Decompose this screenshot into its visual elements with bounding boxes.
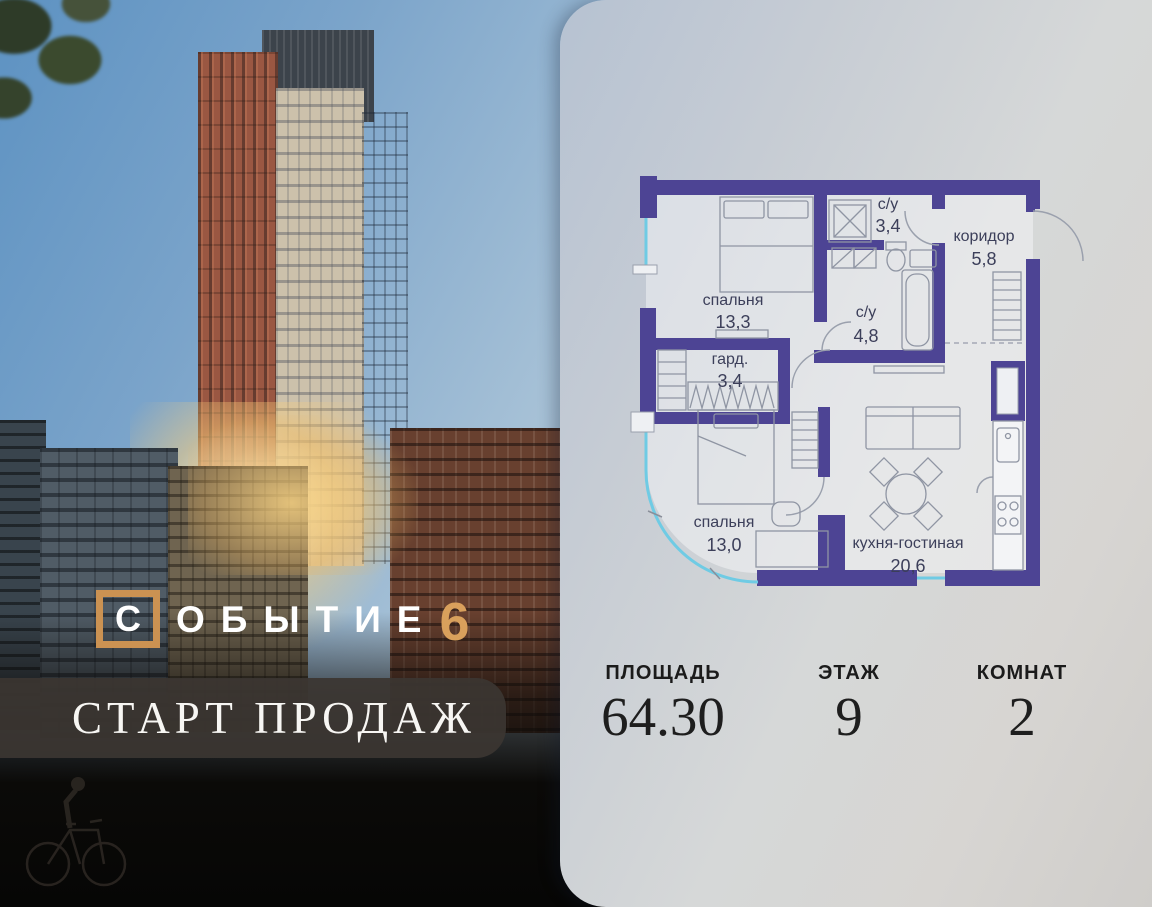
stat-floor: ЭТАЖ 9 [818, 662, 880, 744]
stat-floor-label: ЭТАЖ [818, 662, 880, 685]
tree-branch [0, 0, 186, 176]
logo-wordmark: ОБЫТИЕ [176, 601, 437, 638]
room-label: спальня [703, 292, 764, 309]
tower-base-glow [188, 415, 418, 575]
room-area: 20,6 [890, 556, 925, 576]
room-label: гард. [712, 351, 749, 368]
logo-letter-box: С [96, 590, 160, 648]
room-label: с/у [856, 304, 876, 321]
room-area: 3,4 [875, 216, 900, 236]
stat-rooms-label: КОМНАТ [977, 662, 1068, 685]
sales-banner: СТАРТ ПРОДАЖ [0, 678, 506, 758]
sales-banner-text: СТАРТ ПРОДАЖ [72, 692, 476, 744]
floor-plan: спальня 13,3 гард. 3,4 с/у 3,4 коридор 5… [620, 160, 1090, 610]
room-label: кухня-гостиная [852, 535, 963, 552]
room-area: 4,8 [853, 326, 878, 346]
room-label: коридор [953, 228, 1014, 245]
stat-floor-value: 9 [818, 689, 880, 744]
stat-area: ПЛОЩАДЬ 64.30 [601, 662, 725, 744]
room-area: 13,3 [715, 312, 750, 332]
room-area: 5,8 [971, 249, 996, 269]
brand-logo: С ОБЫТИЕ 6 [96, 589, 470, 649]
stat-rooms: КОМНАТ 2 [977, 662, 1068, 744]
room-label: спальня [694, 514, 755, 531]
room-area: 3,4 [717, 371, 742, 391]
room-label: с/у [878, 196, 898, 213]
stat-area-label: ПЛОЩАДЬ [601, 662, 725, 685]
logo-number: 6 [439, 595, 469, 649]
stat-area-value: 64.30 [601, 689, 725, 744]
logo-first-letter: С [115, 601, 141, 637]
info-card: спальня 13,3 гард. 3,4 с/у 3,4 коридор 5… [560, 0, 1152, 907]
stat-rooms-value: 2 [977, 689, 1068, 744]
room-area: 13,0 [706, 535, 741, 555]
cyclist-silhouette [16, 768, 136, 896]
right-wall-window [997, 368, 1018, 414]
hero-creative: С ОБЫТИЕ 6 СТАРТ ПРОДАЖ [0, 0, 1152, 907]
stats-row: ПЛОЩАДЬ 64.30 ЭТАЖ 9 КОМНАТ 2 [560, 662, 1152, 772]
